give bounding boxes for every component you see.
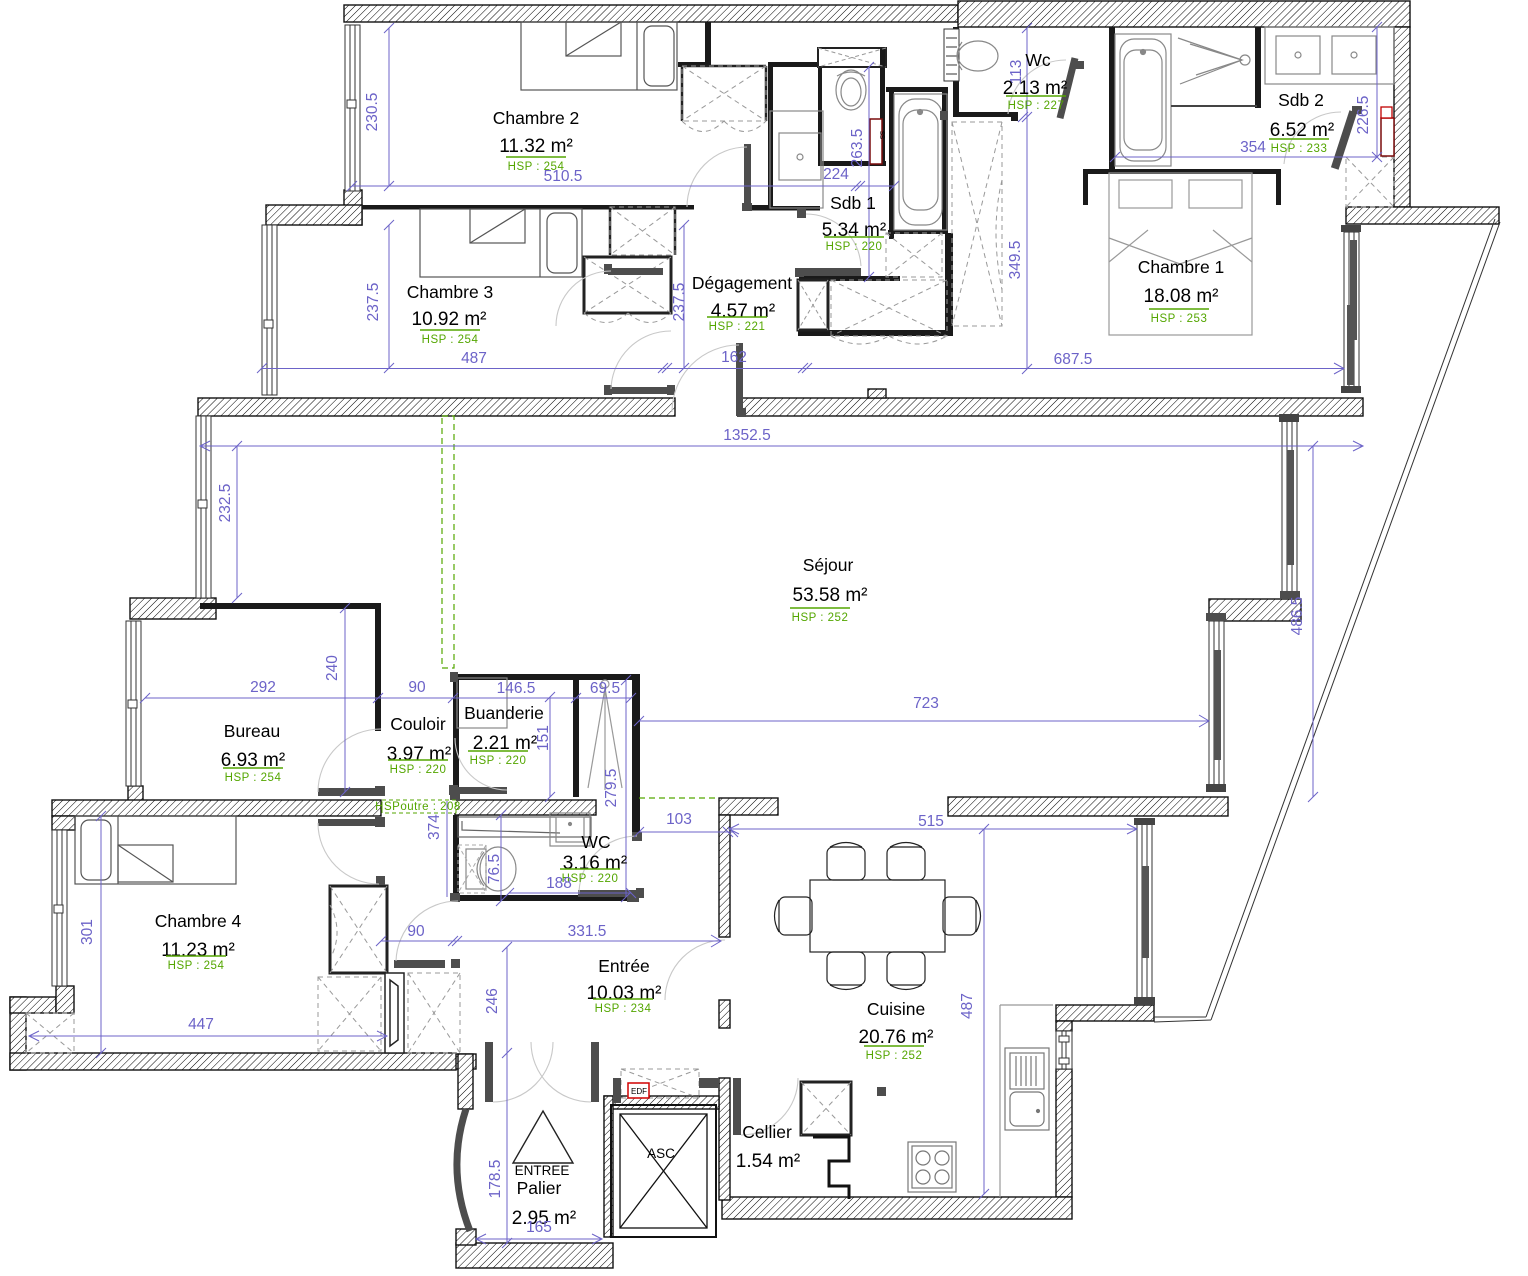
- svg-text:510.5: 510.5: [544, 168, 583, 185]
- svg-text:3.16 m²: 3.16 m²: [563, 853, 627, 874]
- svg-text:Bureau: Bureau: [224, 721, 280, 741]
- svg-text:HSPoutre : 208: HSPoutre : 208: [375, 801, 461, 813]
- svg-text:76.5: 76.5: [486, 854, 503, 884]
- svg-text:11.32 m²: 11.32 m²: [499, 136, 573, 157]
- svg-text:Séjour: Séjour: [803, 555, 854, 575]
- svg-text:Entrée: Entrée: [598, 956, 650, 976]
- svg-text:HSP : 253: HSP : 253: [1151, 313, 1208, 325]
- svg-text:HSP : 220: HSP : 220: [470, 755, 527, 767]
- svg-text:1.54 m²: 1.54 m²: [736, 1151, 800, 1172]
- svg-text:10.03 m²: 10.03 m²: [587, 983, 662, 1004]
- svg-text:HSP : 254: HSP : 254: [168, 960, 225, 972]
- svg-text:292: 292: [250, 679, 276, 696]
- svg-text:Couloir: Couloir: [390, 714, 446, 734]
- svg-text:224: 224: [823, 166, 849, 183]
- svg-text:10.92 m²: 10.92 m²: [412, 309, 487, 330]
- svg-text:Palier: Palier: [517, 1178, 562, 1198]
- svg-text:1352.5: 1352.5: [723, 427, 770, 444]
- svg-text:HSP : 220: HSP : 220: [390, 764, 447, 776]
- svg-text:349.5: 349.5: [1007, 241, 1024, 280]
- svg-text:237.5: 237.5: [671, 283, 688, 322]
- svg-text:HSP : 221: HSP : 221: [709, 321, 766, 333]
- svg-text:103: 103: [666, 811, 692, 828]
- svg-text:487: 487: [461, 350, 487, 367]
- svg-text:Chambre 3: Chambre 3: [407, 282, 494, 302]
- svg-text:Sdb 1: Sdb 1: [830, 193, 876, 213]
- svg-text:301: 301: [79, 919, 96, 945]
- svg-text:Wc: Wc: [1025, 50, 1051, 70]
- svg-text:Cellier: Cellier: [742, 1122, 792, 1142]
- svg-text:723: 723: [913, 695, 939, 712]
- svg-text:151: 151: [535, 725, 552, 751]
- svg-text:20.76 m²: 20.76 m²: [859, 1027, 934, 1048]
- svg-text:Dégagement: Dégagement: [692, 273, 792, 293]
- svg-text:232.5: 232.5: [217, 484, 234, 523]
- svg-text:3.97 m²: 3.97 m²: [387, 744, 451, 765]
- svg-text:246: 246: [484, 988, 501, 1014]
- svg-text:HSP : 220: HSP : 220: [826, 241, 883, 253]
- svg-text:Sdb 2: Sdb 2: [1278, 90, 1324, 110]
- svg-text:240: 240: [324, 655, 341, 681]
- svg-text:Chambre 2: Chambre 2: [493, 108, 580, 128]
- svg-text:ASC: ASC: [647, 1146, 675, 1161]
- svg-text:HSP : 252: HSP : 252: [792, 612, 849, 624]
- svg-text:90: 90: [408, 679, 426, 696]
- svg-text:6.52 m²: 6.52 m²: [1270, 120, 1334, 141]
- svg-text:188: 188: [546, 875, 572, 892]
- svg-text:4.57 m²: 4.57 m²: [711, 301, 775, 322]
- svg-text:237.5: 237.5: [365, 283, 382, 322]
- svg-text:53.58 m²: 53.58 m²: [793, 585, 868, 606]
- svg-text:WC: WC: [581, 832, 610, 852]
- svg-text:Buanderie: Buanderie: [464, 703, 544, 723]
- svg-text:69.5: 69.5: [590, 680, 620, 697]
- svg-text:447: 447: [188, 1016, 214, 1033]
- svg-text:331.5: 331.5: [568, 923, 607, 940]
- svg-text:EDF: EDF: [631, 1087, 647, 1096]
- svg-text:687.5: 687.5: [1054, 351, 1093, 368]
- svg-text:HSP : 252: HSP : 252: [866, 1050, 923, 1062]
- svg-text:178.5: 178.5: [487, 1160, 504, 1199]
- svg-text:ss: ss: [878, 131, 887, 139]
- svg-text:5.34 m²: 5.34 m²: [822, 220, 886, 241]
- svg-text:ENTREE: ENTREE: [515, 1163, 570, 1178]
- svg-text:230.5: 230.5: [364, 93, 381, 132]
- svg-text:146.5: 146.5: [497, 680, 536, 697]
- svg-text:11.23 m²: 11.23 m²: [161, 940, 235, 961]
- svg-text:374: 374: [426, 814, 443, 840]
- svg-text:HSP : 254: HSP : 254: [422, 334, 479, 346]
- svg-text:HSP : 254: HSP : 254: [225, 772, 282, 784]
- svg-text:354: 354: [1240, 139, 1266, 156]
- svg-text:Chambre 4: Chambre 4: [155, 911, 242, 931]
- svg-text:486.5: 486.5: [1289, 597, 1306, 636]
- svg-text:113: 113: [1008, 60, 1025, 85]
- svg-text:18.08 m²: 18.08 m²: [1144, 286, 1219, 307]
- svg-text:90: 90: [407, 923, 425, 940]
- svg-text:Chambre 1: Chambre 1: [1138, 257, 1225, 277]
- svg-text:165: 165: [526, 1219, 552, 1236]
- svg-text:Cuisine: Cuisine: [867, 999, 925, 1019]
- svg-text:HSP : 234: HSP : 234: [595, 1003, 652, 1015]
- svg-text:263.5: 263.5: [849, 129, 866, 168]
- svg-text:162: 162: [721, 349, 747, 366]
- svg-text:226.5: 226.5: [1355, 96, 1372, 135]
- svg-text:515: 515: [918, 813, 944, 830]
- svg-text:487: 487: [959, 993, 976, 1019]
- svg-text:HSP : 227: HSP : 227: [1008, 100, 1065, 112]
- svg-text:HSP : 233: HSP : 233: [1271, 143, 1328, 155]
- svg-text:279.5: 279.5: [603, 769, 620, 808]
